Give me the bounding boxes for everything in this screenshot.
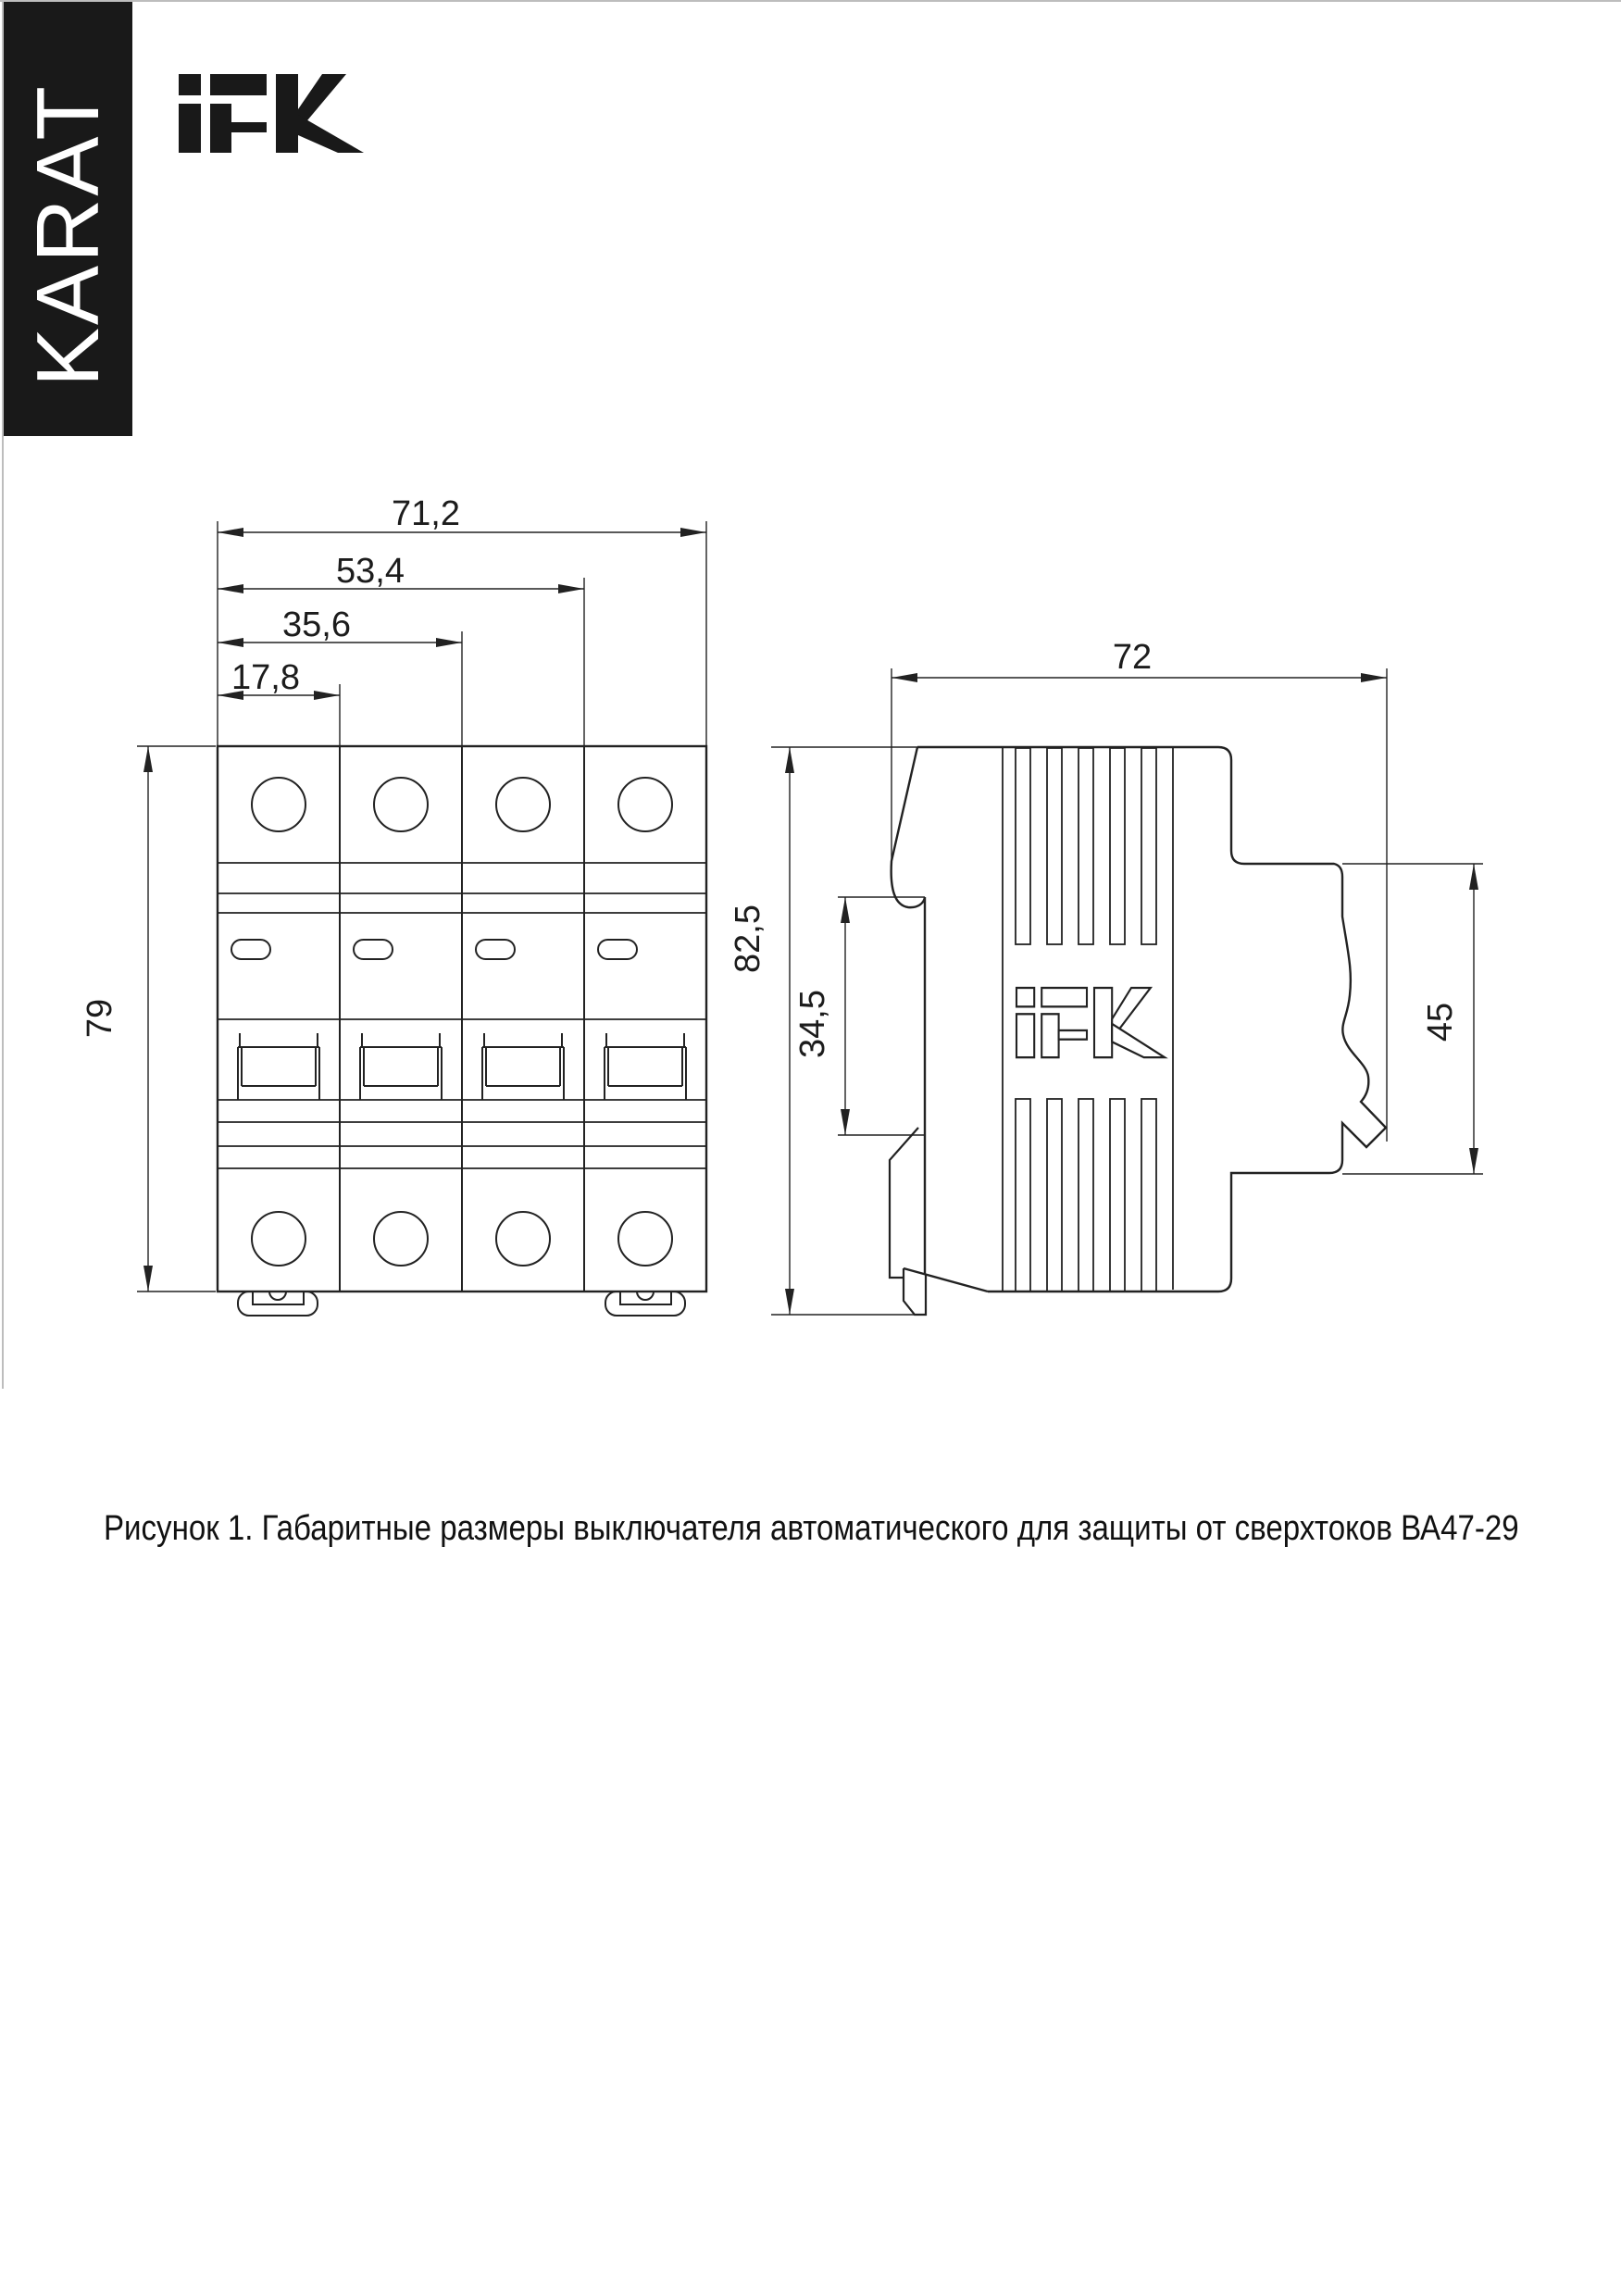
front-dimension-lines [137,521,706,1291]
dim-label-side-front-height: 45 [1421,1003,1460,1042]
dim-label-side-total-height: 82,5 [729,905,767,973]
datasheet-page: KARAT [0,0,1621,2296]
front-label-windows [231,940,637,959]
dim-label-front-width-2: 35,6 [282,605,351,644]
dim-label-front-height: 79 [81,999,119,1038]
side-dimension-lines [771,668,1483,1315]
technical-drawing: 71,2 53,4 35,6 17,8 79 [0,0,1621,1444]
front-view: 71,2 53,4 35,6 17,8 79 [81,494,706,1316]
toggle-handle [238,1033,319,1100]
din-clip [605,1291,685,1316]
side-din-clip-lower [890,1128,918,1278]
side-din-foot [904,1268,926,1315]
din-clip [238,1291,318,1316]
dim-label-side-depth: 72 [1113,638,1152,677]
side-body-outline [917,747,1386,1291]
dim-label-side-din-plate: 34,5 [793,990,832,1058]
figure-caption: Рисунок 1. Габаритные размеры выключател… [104,1509,1519,1549]
dim-label-front-width-1: 17,8 [231,658,300,697]
dim-label-front-width-3: 53,4 [336,552,405,591]
toggle-handle [360,1033,442,1100]
toggle-handle [482,1033,564,1100]
side-din-mount [892,747,925,1275]
toggle-handle [605,1033,686,1100]
side-bottom-slant [904,1268,988,1291]
front-din-clips [238,1291,685,1316]
dim-label-front-total-width: 71,2 [392,494,460,533]
side-view: 72 82,5 34,5 45 [729,638,1483,1315]
iek-logo-side [1016,988,1165,1057]
